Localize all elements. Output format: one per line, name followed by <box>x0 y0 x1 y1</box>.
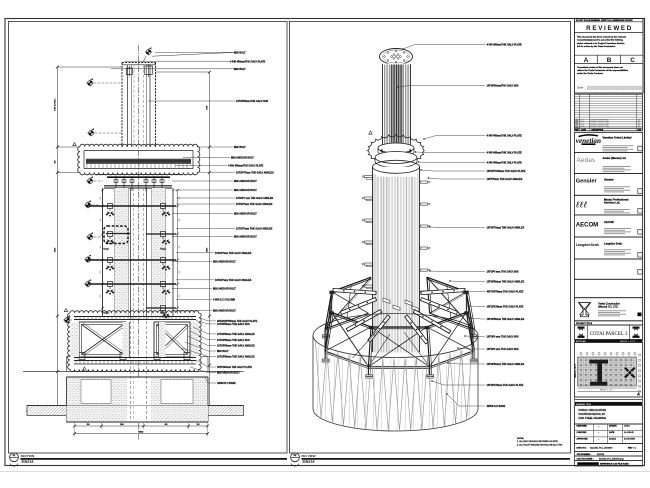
svg-text:500: 500 <box>179 271 181 274</box>
svg-text:10TP70mm THK GALV ANGLES: 10TP70mm THK GALV ANGLES <box>487 178 523 181</box>
svg-text:SCALE 1:5: SCALE 1:5 <box>303 460 315 463</box>
svg-text:10TOP0 mm THK GALV SHS: 10TOP0 mm THK GALV SHS <box>487 348 519 351</box>
svg-text:500: 500 <box>179 219 181 222</box>
svg-text:(Macau) CO. LTD.: (Macau) CO. LTD. <box>598 306 619 309</box>
svg-text:500: 500 <box>100 295 102 298</box>
svg-text:DESCRIPTION: DESCRIPTION <box>592 129 604 131</box>
svg-text:10TOP50mm THK GALV ANGLES: 10TOP50mm THK GALV ANGLES <box>217 333 255 336</box>
svg-text:status referred to in Proj: status referred to in Project Procedure … <box>577 42 625 45</box>
svg-text:B: B <box>607 57 612 64</box>
svg-text:10TOP7mm THK GALV ANGLES: 10TOP7mm THK GALV ANGLES <box>236 203 273 206</box>
svg-text:M20 ANCHOR BOLT: M20 ANCHOR BOLT <box>234 189 257 192</box>
svg-text:SCALE 1:5: SCALE 1:5 <box>22 460 34 463</box>
svg-text:SCALE: SCALE <box>609 437 616 440</box>
svg-text:M20 ANCHOR BOLT: M20 ANCHOR BOLT <box>217 372 240 375</box>
svg-text:PARCEL 1, LOT 2: PARCEL 1, LOT 2 <box>600 389 614 392</box>
svg-text:Aedas (Macau) Ltd.: Aedas (Macau) Ltd. <box>603 156 627 160</box>
svg-text:AS SHOWN: AS SHOWN <box>624 437 635 440</box>
svg-text:under the Trade Contract.: under the Trade Contract. <box>577 72 603 75</box>
svg-text:4 300 R.C COLUMN: 4 300 R.C COLUMN <box>213 299 235 302</box>
svg-text:M20 ANCHOR BOLT: M20 ANCHOR BOLT <box>213 310 236 313</box>
svg-text:10TOP7mm THK GALV ANGLES: 10TOP7mm THK GALV ANGLES <box>236 228 273 231</box>
svg-text:4 545 450mmTHK GALV PLATE: 4 545 450mmTHK GALV PLATE <box>487 44 523 47</box>
svg-text:CAD FILE NAME :: CAD FILE NAME : <box>577 457 594 460</box>
svg-text:DRAWN: DRAWN <box>609 424 617 427</box>
svg-text:10TOP7mm THK GALV ANGLES: 10TOP7mm THK GALV ANGLES <box>215 279 252 282</box>
svg-text:200: 200 <box>87 424 90 426</box>
svg-text:10TOP77mm THK GALV ANGLES: 10TOP77mm THK GALV ANGLES <box>236 171 274 174</box>
svg-text:10TH/TP150mm THK GALV PLATE: 10TH/TP150mm THK GALV PLATE <box>487 170 526 173</box>
svg-text:02/05: 02/05 <box>580 122 584 124</box>
svg-text:M20 BOLT: M20 BOLT <box>217 350 229 353</box>
svg-text:5115/20_PCL_05/4000: 5115/20_PCL_05/4000 <box>590 448 613 450</box>
svg-text:This document has been revised: This document has been revised by the re… <box>577 35 626 38</box>
svg-text:AECOM: AECOM <box>576 223 598 229</box>
svg-text:DWG NO :: DWG NO : <box>577 448 588 450</box>
svg-text:C: C <box>630 57 635 64</box>
svg-text:M20 ANCHOR BOLT: M20 ANCHOR BOLT <box>213 288 236 291</box>
svg-text:ℓℓℓ: ℓℓℓ <box>576 200 588 210</box>
svg-text:10TOP50mm THK GALV ANGLES: 10TOP50mm THK GALV ANGLES <box>487 363 525 366</box>
svg-text:APPROVED: APPROVED <box>577 437 589 440</box>
svg-text:10TOP50mm THK GALV SHS: 10TOP50mm THK GALV SHS <box>217 339 250 342</box>
svg-text:relieve the Trade Contracto: relieve the Trade Contractor of his resp… <box>577 69 629 72</box>
svg-text:PUBLIC CIRCULATION: PUBLIC CIRCULATION <box>579 408 607 412</box>
svg-text:A: A <box>584 57 589 64</box>
svg-text:REFERENCE CAD FILE NAME: REFERENCE CAD FILE NAME <box>600 463 629 466</box>
svg-text:75( typ ): 75( typ ) <box>103 248 110 251</box>
svg-text:4 545 450mmTHK GALV PLATE: 4 545 450mmTHK GALV PLATE <box>487 162 523 165</box>
svg-text:14-JUN-05: 14-JUN-05 <box>624 432 635 434</box>
svg-text:10TOP7mm THK GALV ANGLES: 10TOP7mm THK GALV ANGLES <box>215 252 252 255</box>
svg-text:DATE: DATE <box>609 431 615 434</box>
svg-text:PARCEL 1, LOT 3: PARCEL 1, LOT 3 <box>574 364 577 378</box>
svg-text:28562: 28562 <box>139 432 144 434</box>
svg-text:5115/20_PCL_05/4000.dwg: 5115/20_PCL_05/4000.dwg <box>599 458 624 460</box>
svg-text:Consultant(s)(s) and is acc: Consultant(s)(s) and is accorded the fol… <box>577 39 623 42</box>
svg-text:1. ALL BOLT SHOULD BE FIXING O: 1. ALL BOLT SHOULD BE FIXING ON SITE. <box>517 440 559 443</box>
svg-text:M20 ANCHOR BOLT: M20 ANCHOR BOLT <box>234 213 257 216</box>
svg-text:Gensler: Gensler <box>604 178 614 182</box>
svg-text:Services Ltd.: Services Ltd. <box>604 201 620 205</box>
svg-text:40TP100mm THK GALV PLATE: 40TP100mm THK GALV PLATE <box>217 366 252 369</box>
svg-text:10TOP150mm THK GALV PLATE: 10TOP150mm THK GALV PLATE <box>487 384 524 387</box>
svg-text:2. ALL FILLET WELDED SHOULD BE: 2. ALL FILLET WELDED SHOULD BE 6mm THK. <box>517 444 563 447</box>
svg-text:M20 BOLT: M20 BOLT <box>234 68 246 71</box>
svg-text:42500 R.C BASE: 42500 R.C BASE <box>217 382 236 385</box>
svg-text:Venetian Orient Limited: Venetian Orient Limited <box>603 136 632 140</box>
svg-text:4 500 450mmTHK GALV PLATE: 4 500 450mmTHK GALV PLATE <box>228 165 264 168</box>
svg-text:1788 (LEVEL): 1788 (LEVEL) <box>55 98 57 111</box>
svg-text:Langdon Seah: Langdon Seah <box>604 242 622 246</box>
svg-text:AECOM: AECOM <box>604 220 614 224</box>
svg-text:10TOP70mm THK GALV ANGLES: 10TOP70mm THK GALV ANGLES <box>487 227 525 230</box>
svg-text:10TOP50mm THK GALV ANGLES: 10TOP50mm THK GALV ANGLES <box>217 356 255 359</box>
svg-text:Consultant review of this: Consultant review of this document does … <box>577 66 623 69</box>
svg-text:42500 R.C BASE: 42500 R.C BASE <box>487 405 506 408</box>
svg-text:REV : C: REV : C <box>628 448 636 450</box>
svg-text:500: 500 <box>179 246 181 249</box>
svg-text:500: 500 <box>179 295 181 298</box>
svg-text:500: 500 <box>100 219 102 222</box>
svg-text:CHAO: CHAO <box>624 424 630 427</box>
svg-text:10TOP? mm THK GALV ANGLES: 10TOP? mm THK GALV ANGLES <box>236 197 274 200</box>
svg-text:M20 ANCHOR BOLT: M20 ANCHOR BOLT <box>231 156 254 159</box>
svg-text:COTAI PARCEL 3: COTAI PARCEL 3 <box>590 332 628 337</box>
svg-text:10TOP0 mm THK GALV SHS: 10TOP0 mm THK GALV SHS <box>487 336 519 339</box>
svg-text:10TOP50mmTHK GALV SHS: 10TOP50mmTHK GALV SHS <box>236 100 268 103</box>
svg-text:CHECKED: CHECKED <box>577 432 587 434</box>
svg-text:DO NOT SCALE DRAWING. VERIFY A: DO NOT SCALE DRAWING. VERIFY ALL DIMENSI… <box>576 19 633 22</box>
svg-text:Gensler: Gensler <box>576 178 598 184</box>
svg-text:5115/20: 5115/20 <box>597 454 605 456</box>
svg-text:SECTION: SECTION <box>21 454 36 458</box>
svg-text:M20 ANCHOR BOLT: M20 ANCHOR BOLT <box>213 261 236 264</box>
svg-text:FOUNTAIN DETAIL 25: FOUNTAIN DETAIL 25 <box>579 412 606 416</box>
svg-text:Aedas: Aedas <box>577 157 596 164</box>
svg-text:10TOP0 mm THK GALV SHS: 10TOP0 mm THK GALV SHS <box>487 271 519 274</box>
svg-text:4 545 450mmTHK GALV PLATE: 4 545 450mmTHK GALV PLATE <box>230 60 266 63</box>
svg-text:500: 500 <box>100 246 102 249</box>
svg-text:M20 BOLT: M20 BOLT <box>234 146 246 149</box>
svg-text:LangdonSeah: LangdonSeah <box>576 243 599 247</box>
svg-text:M20 BOLT: M20 BOLT <box>234 52 246 55</box>
svg-text:500: 500 <box>100 197 102 200</box>
svg-text:Date :: Date : <box>577 86 585 90</box>
svg-text:DESIGNED: DESIGNED <box>577 425 588 427</box>
svg-text:10TOP50mm THK GALV ANGLES: 10TOP50mm THK GALV ANGLES <box>217 345 255 348</box>
svg-text:10TOP150mm THK GALV PLATE: 10TOP150mm THK GALV PLATE <box>487 306 524 309</box>
svg-text:5.4 for action by the Trade: 5.4 for action by the Trade Contractor. <box>577 45 616 48</box>
svg-text:10TOP50mm THK GALV ANGLES: 10TOP50mm THK GALV ANGLES <box>487 318 525 321</box>
svg-text:450TOP70mm THK GALV PLATE: 450TOP70mm THK GALV PLATE <box>487 291 524 294</box>
svg-text:02/05: 02/05 <box>580 119 584 121</box>
svg-text:FOR STEEL DRAWING: FOR STEEL DRAWING <box>579 416 606 420</box>
svg-text:M20 ANCHOR BOLT: M20 ANCHOR BOLT <box>234 235 257 238</box>
svg-text:NOTE:: NOTE: <box>517 438 524 440</box>
svg-text:10TOP50mmTHK GALV SHS: 10TOP50mmTHK GALV SHS <box>487 85 519 88</box>
svg-text:ISO VIEW: ISO VIEW <box>302 454 316 458</box>
svg-text:10TOP50mm THK GALV SHS: 10TOP50mm THK GALV SHS <box>217 323 250 326</box>
svg-text:JOB NUMBER :: JOB NUMBER : <box>577 454 592 456</box>
svg-text:200: 200 <box>197 424 200 426</box>
svg-text:500: 500 <box>100 271 102 274</box>
svg-text:10TOP50mm THK GALV ANGLES: 10TOP50mm THK GALV ANGLES <box>487 281 525 284</box>
svg-text:75( typ ): 75( typ ) <box>160 248 167 251</box>
svg-text:2641: 2641 <box>120 424 124 426</box>
svg-text:R E V I E W E D: R E V I E W E D <box>586 25 632 32</box>
svg-text:450: 450 <box>165 424 168 426</box>
svg-text:M20 ANCHOR BOLT: M20 ANCHOR BOLT <box>234 180 257 183</box>
svg-text:02/05: 02/05 <box>580 124 584 126</box>
svg-text:75( typ ): 75( typ ) <box>160 312 167 315</box>
svg-text:4 545 450mmTHK GALV PLATE: 4 545 450mmTHK GALV PLATE <box>487 152 523 155</box>
svg-text:4 545 450mmTHK GALV PLATE: 4 545 450mmTHK GALV PLATE <box>487 135 523 138</box>
